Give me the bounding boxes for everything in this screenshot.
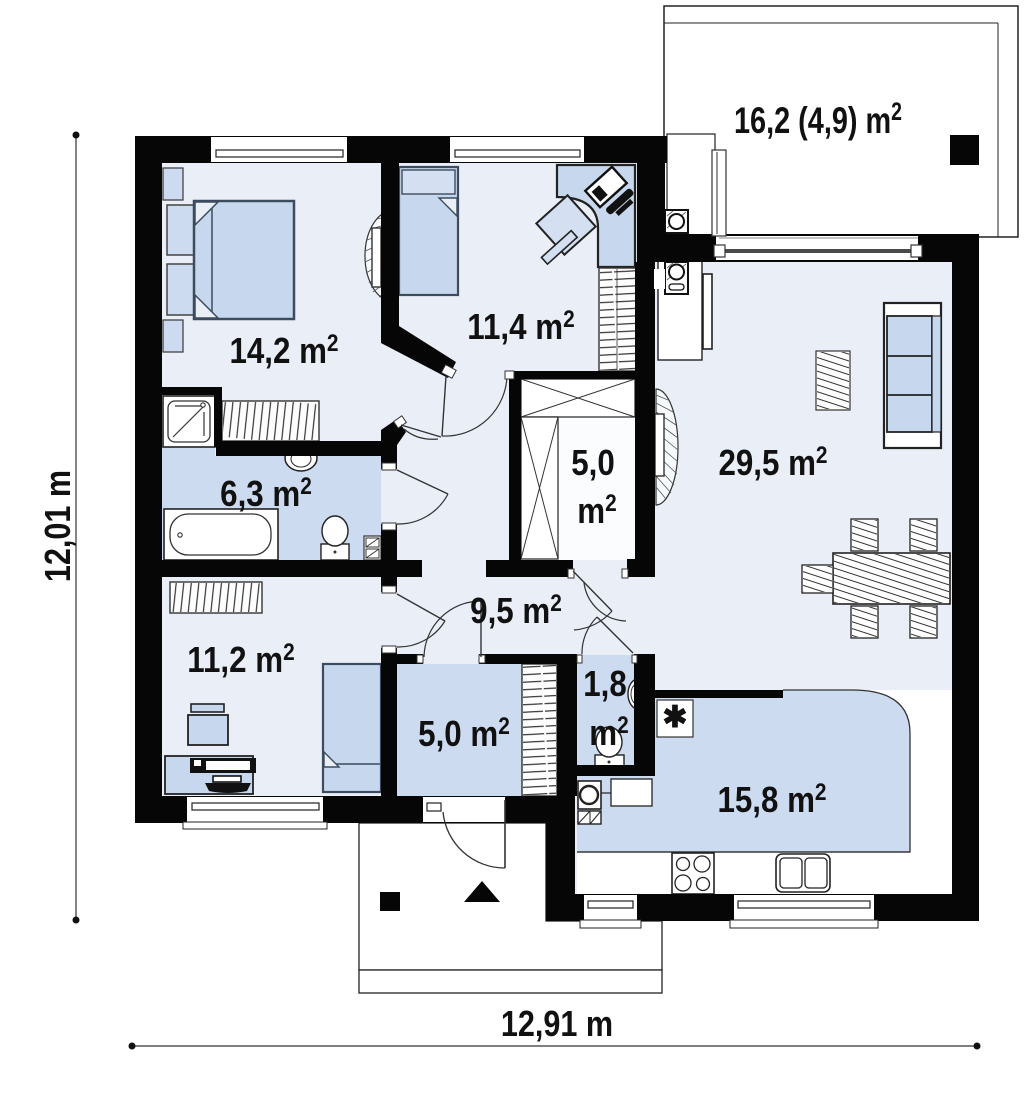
svg-text:11,4 m2: 11,4 m2 bbox=[467, 306, 574, 348]
svg-text:12,91 m: 12,91 m bbox=[501, 1005, 613, 1045]
svg-text:9,5 m2: 9,5 m2 bbox=[470, 590, 562, 632]
svg-text:11,2 m2: 11,2 m2 bbox=[187, 639, 294, 681]
svg-text:6,3 m2: 6,3 m2 bbox=[220, 473, 312, 515]
svg-text:16,2 (4,9) m2: 16,2 (4,9) m2 bbox=[734, 98, 902, 142]
svg-text:5,0: 5,0 bbox=[571, 443, 615, 484]
svg-text:1,8: 1,8 bbox=[583, 664, 627, 705]
svg-text:5,0 m2: 5,0 m2 bbox=[418, 713, 510, 755]
svg-text:✱: ✱ bbox=[662, 701, 687, 734]
svg-text:12,01 m: 12,01 m bbox=[39, 470, 79, 582]
svg-text:14,2 m2: 14,2 m2 bbox=[229, 330, 338, 372]
svg-text:15,8 m2: 15,8 m2 bbox=[717, 779, 826, 821]
svg-text:29,5 m2: 29,5 m2 bbox=[718, 442, 827, 484]
